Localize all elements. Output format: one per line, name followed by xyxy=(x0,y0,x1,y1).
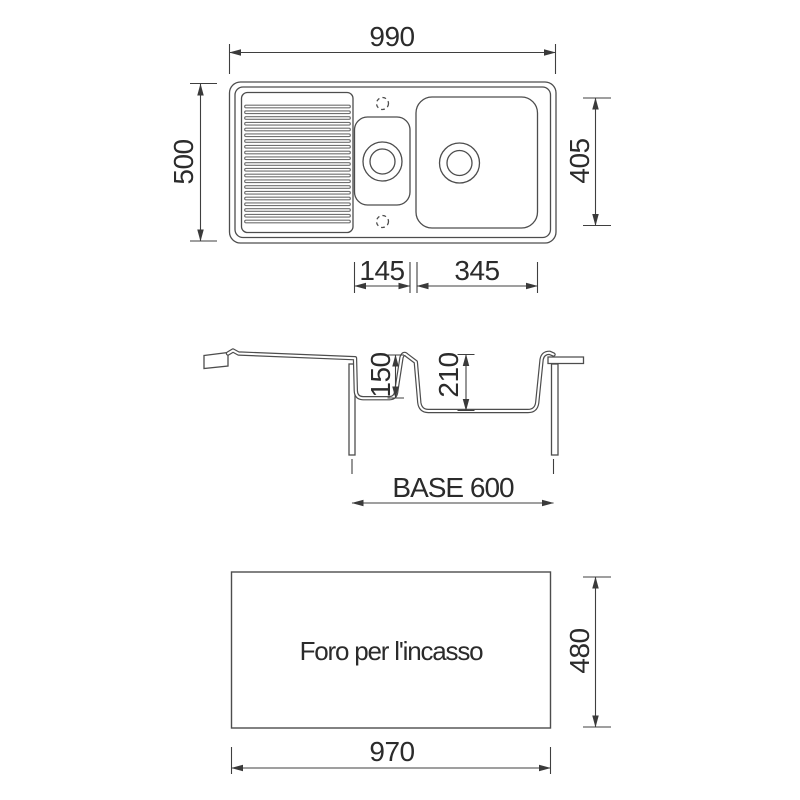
cutout-caption: Foro per l'incasso xyxy=(300,638,483,664)
half-bowl-drain-outer xyxy=(363,142,402,181)
base-cabinet-right-wall xyxy=(552,364,559,455)
tap-hole-bottom xyxy=(377,216,389,228)
dim-label-main-bowl-width: 345 xyxy=(454,257,499,285)
dim-label-base-cabinet: BASE 600 xyxy=(392,474,513,502)
dim-label-cutout-depth: 480 xyxy=(566,628,594,673)
cutout-view-dimensions xyxy=(232,577,612,774)
dim-label-main-bowl-depth: 210 xyxy=(435,352,463,397)
main-bowl-drain-inner xyxy=(447,151,472,176)
half-bowl-drain-inner xyxy=(370,149,395,174)
plan-view-sink xyxy=(230,82,557,243)
main-bowl-drain-outer xyxy=(440,143,480,183)
sink-technical-drawing-sheet: 990 500 405 145 345 150 210 BASE 600 For… xyxy=(0,0,800,800)
dim-label-half-bowl-depth: 150 xyxy=(367,352,395,397)
main-bowl-outline xyxy=(416,97,538,228)
dim-label-half-bowl-width: 145 xyxy=(359,257,404,285)
dim-label-overall-depth: 500 xyxy=(170,139,198,184)
dim-label-overall-width: 990 xyxy=(369,23,414,51)
dim-label-bowl-depth: 405 xyxy=(566,138,594,183)
tap-hole-top xyxy=(377,98,389,110)
drawing-linework xyxy=(0,0,800,800)
countertop-left-edge xyxy=(204,353,228,369)
drainboard-ribs xyxy=(246,107,349,222)
countertop-right-edge xyxy=(548,357,584,364)
dim-label-cutout-width: 970 xyxy=(369,738,414,766)
